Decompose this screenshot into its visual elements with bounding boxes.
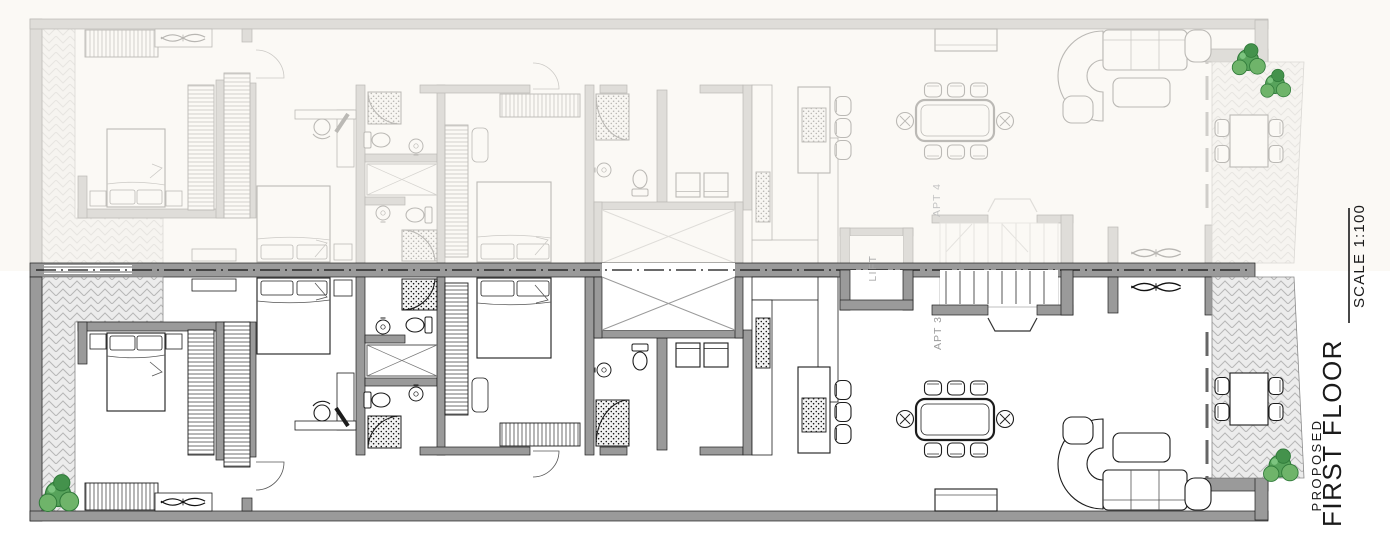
scale-label: SCALE 1:100 bbox=[1351, 204, 1368, 308]
faded-overlay bbox=[0, 0, 1390, 271]
entrance-door-icon bbox=[988, 318, 1037, 331]
lower-apartment-plan bbox=[30, 277, 1304, 521]
lift-label: LIFT bbox=[868, 255, 879, 282]
apt4-label: APT 4 bbox=[931, 183, 943, 217]
stairs-icon bbox=[932, 270, 1073, 331]
apt3-label: APT 3 bbox=[932, 316, 944, 350]
sheet-subtitle: PROPOSED bbox=[1309, 419, 1324, 512]
floor-plan-canvas: LIFT APT 3 APT 4 SCALE 1:100 FIRST FLOOR… bbox=[0, 0, 1390, 556]
floor-plan-drawing: LIFT APT 3 APT 4 SCALE 1:100 FIRST FLOOR… bbox=[0, 0, 1390, 556]
